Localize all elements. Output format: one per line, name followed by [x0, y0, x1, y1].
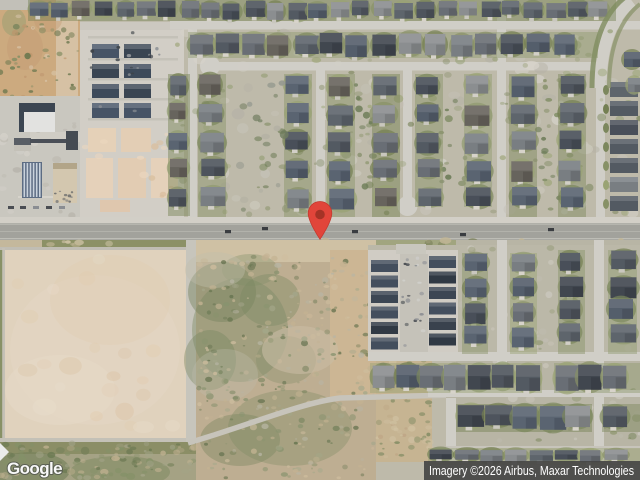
svg-text:Imagery ©2026 Airbus, Maxar Te: Imagery ©2026 Airbus, Maxar Technologies [429, 464, 634, 478]
